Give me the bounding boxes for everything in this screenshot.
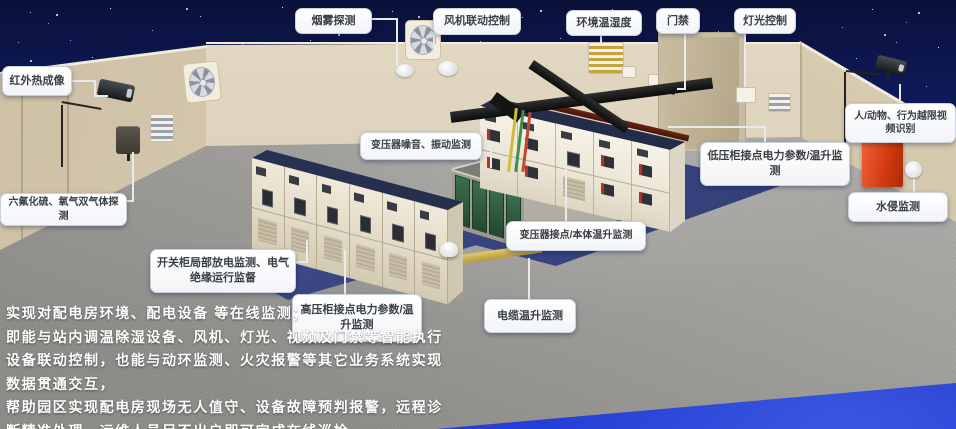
- hv-cabinet: [350, 184, 383, 287]
- callout-dual-gas-detection: 六氟化硫、氧气双气体探测: [0, 193, 127, 226]
- leader-line: [764, 126, 766, 143]
- description-line: 帮助园区实现配电房现场无人值守、设备故障预判报警，远程诊: [6, 396, 443, 420]
- leader-line: [132, 152, 134, 202]
- callout-transformer-noise-vibration: 变压器噪音、振动监测: [360, 132, 482, 160]
- callout-water-intrusion-monitoring: 水侵监测: [848, 192, 948, 222]
- leader-line: [96, 95, 108, 97]
- description-line: 设备联动控制，也能与动环监测、火灾报警等其它业务系统实现: [6, 349, 443, 373]
- water-leak-sensor-icon: [905, 161, 922, 178]
- callout-switchgear-partial-discharge: 开关柜局部放电监测、电气绝缘运行监督: [150, 249, 296, 293]
- leader-line: [744, 32, 746, 87]
- ceiling-speaker-icon: [438, 61, 458, 76]
- temp-humidity-sensor-icon: [588, 42, 624, 74]
- leader-line: [433, 32, 435, 54]
- callout-lv-cabinet-power-temp: 低压柜接点电力参数/温升监测: [700, 142, 850, 186]
- exhaust-fan-icon: [182, 60, 222, 104]
- gas-detector-stub: [127, 154, 130, 161]
- access-control-reader-icon: [768, 93, 791, 112]
- callout-infrared-thermal-imaging: 红外热成像: [2, 66, 72, 96]
- leader-line: [899, 84, 901, 104]
- floor-lamp: [440, 242, 458, 257]
- callout-fan-linkage-control: 风机联动控制: [433, 8, 521, 35]
- description-line: 实现对配电房环境、配电设备 等在线监测；: [6, 302, 443, 326]
- hv-cabinet: [252, 158, 285, 261]
- callout-smoke-detection: 烟雾探测: [295, 8, 372, 34]
- lv-cabinet: [594, 132, 632, 223]
- camera-bracket: [887, 72, 890, 81]
- hv-cabinet: [383, 193, 416, 296]
- callout-lighting-control: 灯光控制: [734, 8, 796, 34]
- callout-env-temp-humidity: 环境温湿度: [566, 10, 642, 36]
- camera-cable: [61, 105, 63, 167]
- callout-intrusion-video-recognition: 人/动物、行为越限视频识别: [845, 103, 956, 143]
- leader-line: [396, 18, 398, 66]
- leader-line: [668, 126, 766, 128]
- light-switch-icon: [736, 87, 756, 103]
- description-line: 即能与站内调温除湿设备、风机、灯光、视频及门禁等智能执行: [6, 326, 443, 350]
- leader-line: [913, 179, 915, 193]
- description-line: 断精准处理，运维人员足不出户即可完成在线巡检。: [6, 420, 443, 429]
- leader-line: [371, 18, 398, 20]
- leader-line: [490, 145, 492, 168]
- leader-line: [565, 150, 567, 222]
- smoke-detector-icon: [396, 64, 414, 77]
- description-line: 数据贯通交互，: [6, 373, 443, 397]
- wall-box-small: [622, 66, 636, 78]
- leader-line: [72, 80, 96, 82]
- leader-line: [677, 88, 686, 90]
- feature-description: 实现对配电房环境、配电设备 等在线监测； 即能与站内调温除湿设备、风机、灯光、视…: [6, 302, 443, 429]
- fire-extinguisher-cabinet: [862, 139, 903, 187]
- callout-cable-temp-monitoring: 电缆温升监测: [484, 299, 576, 333]
- callout-transformer-contact-temp: 变压器接点/本体温升监测: [506, 221, 646, 251]
- lv-cabinet: [556, 124, 594, 215]
- callout-access-control: 门禁: [656, 8, 700, 34]
- gas-detector-icon: [116, 126, 140, 154]
- power-distribution-room-scene: 红外热成像 烟雾探测 风机联动控制 环境温湿度 门禁 灯光控制 人/动物、行为越…: [0, 0, 956, 429]
- leader-line: [344, 250, 346, 295]
- leader-line: [306, 240, 308, 263]
- wall-louver-device: [150, 114, 174, 142]
- wall-corner-seam: [800, 42, 802, 146]
- starfield-big: [0, 0, 2, 2]
- lv-cabinet: [632, 141, 670, 232]
- leader-line: [684, 32, 686, 89]
- leader-line: [528, 258, 530, 300]
